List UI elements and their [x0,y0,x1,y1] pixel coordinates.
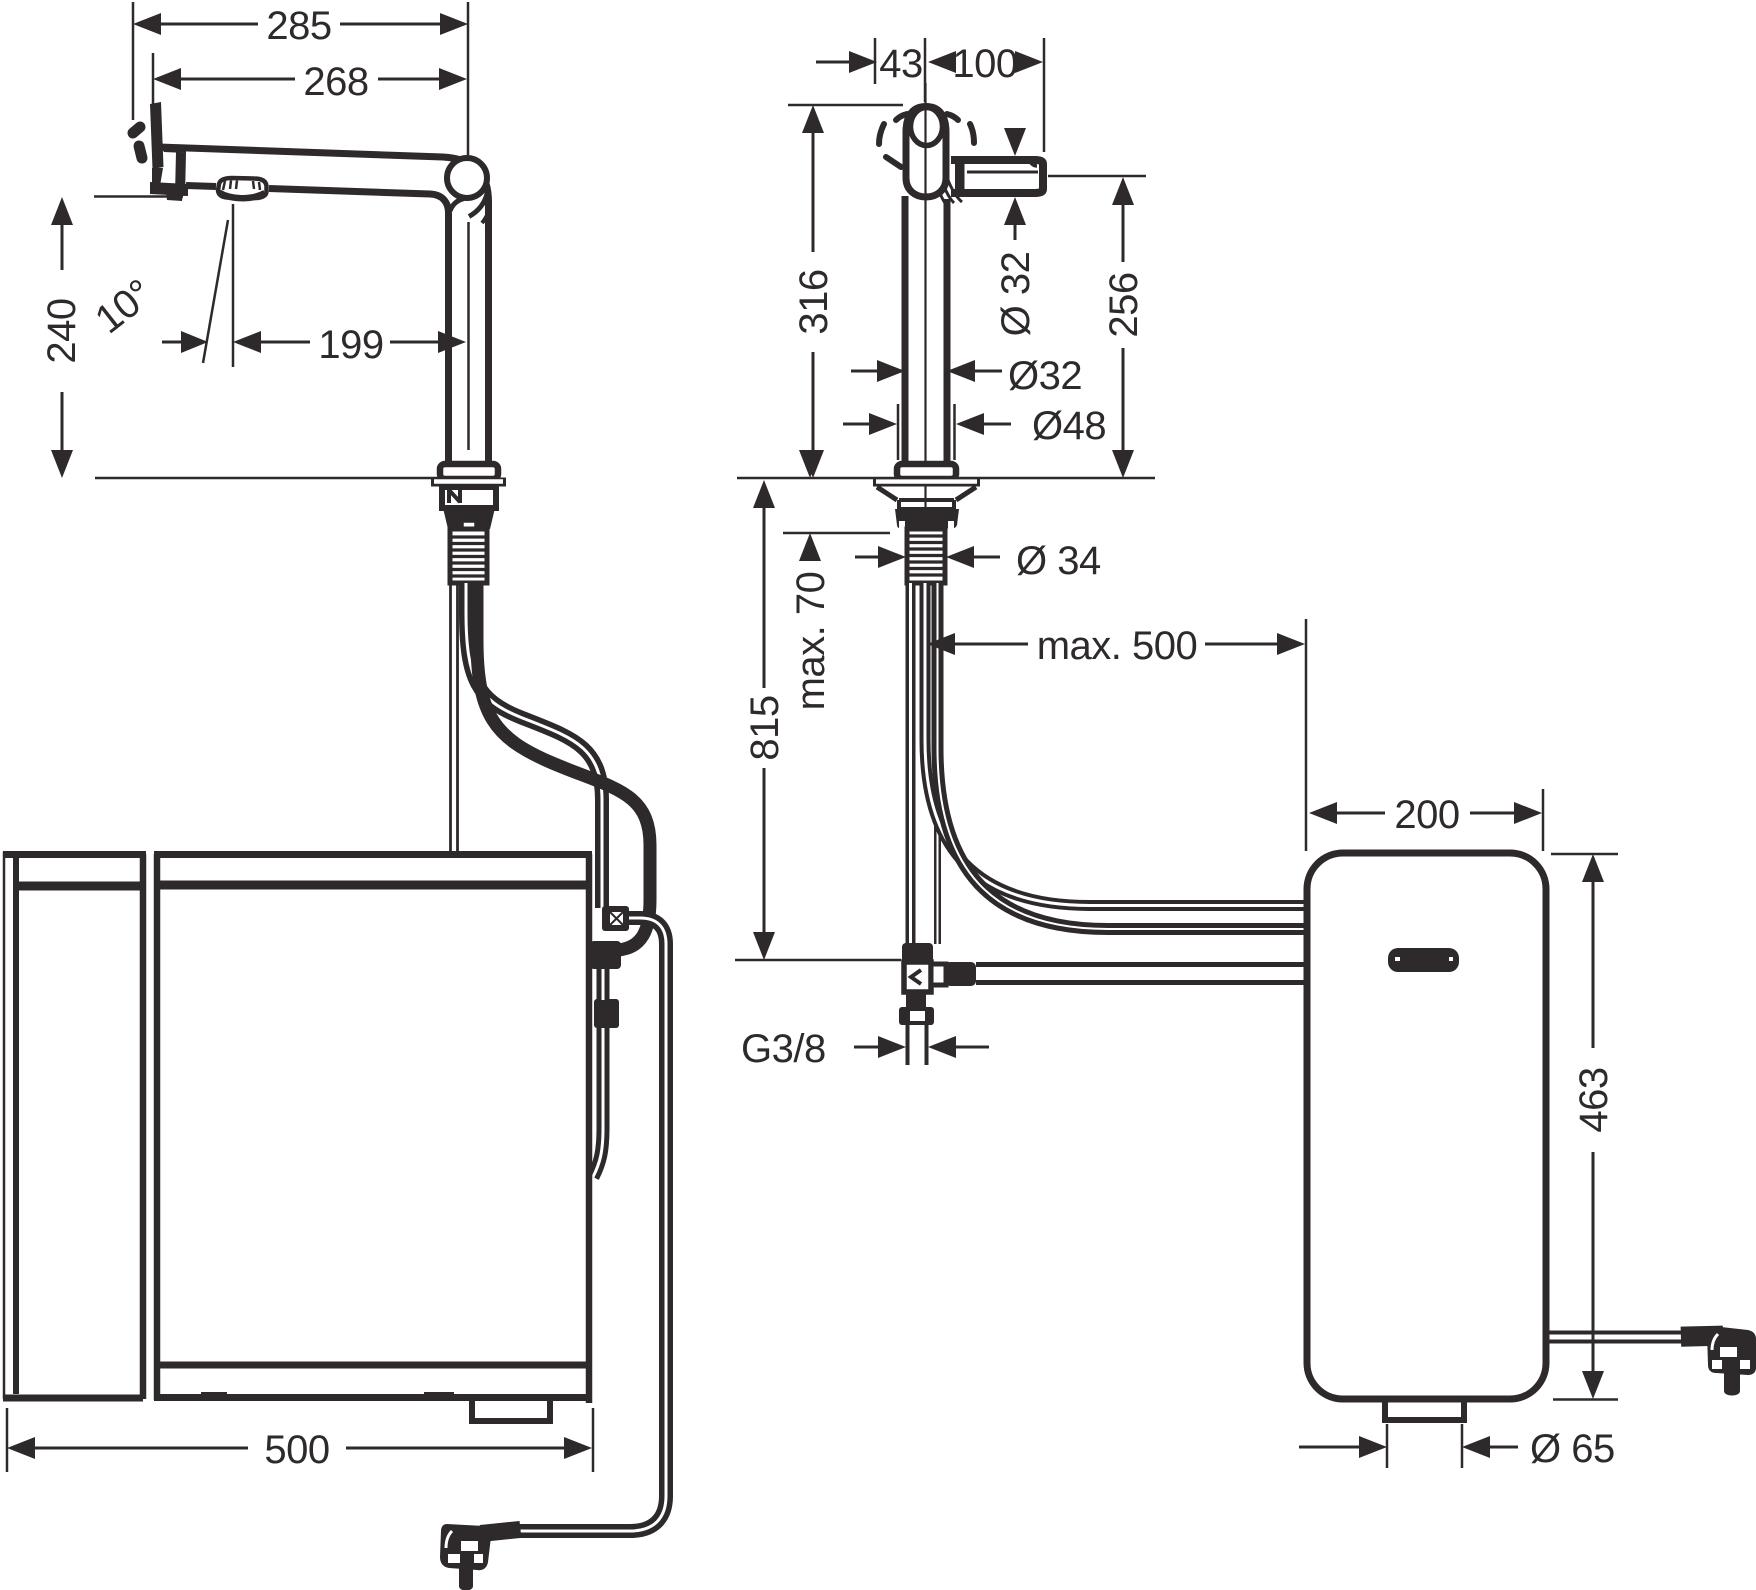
svg-text:max. 70: max. 70 [789,572,833,711]
svg-text:100: 100 [952,42,1017,86]
svg-text:463: 463 [1572,1067,1616,1132]
svg-text:199: 199 [318,323,383,367]
svg-text:316: 316 [792,269,836,334]
svg-text:Ø32: Ø32 [1008,354,1082,398]
svg-text:200: 200 [1394,793,1459,837]
svg-text:max. 500: max. 500 [1037,624,1198,668]
svg-text:500: 500 [264,1428,329,1472]
svg-text:285: 285 [266,4,331,48]
svg-text:268: 268 [303,60,368,104]
svg-text:Ø 32: Ø 32 [994,252,1038,337]
svg-text:256: 256 [1102,272,1146,337]
svg-text:10°: 10° [87,271,161,342]
svg-text:Ø 34: Ø 34 [1016,539,1101,583]
svg-text:Ø 65: Ø 65 [1530,1427,1615,1471]
svg-text:240: 240 [40,298,84,363]
svg-text:Ø48: Ø48 [1032,404,1106,448]
svg-text:815: 815 [743,695,787,760]
svg-text:43: 43 [879,42,923,86]
svg-text:G3/8: G3/8 [741,1027,826,1071]
